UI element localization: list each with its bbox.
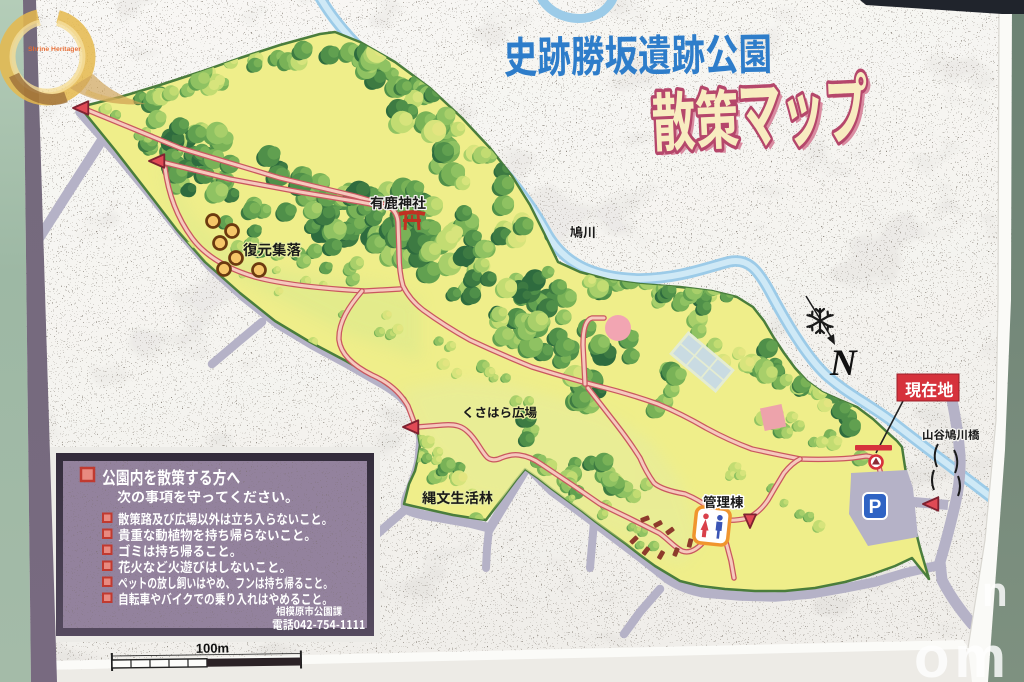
svg-text:Shrine Heritager: Shrine Heritager — [28, 46, 81, 53]
svg-text:om: om — [914, 625, 1011, 682]
svg-text:100m: 100m — [196, 640, 229, 655]
svg-text:n: n — [982, 568, 1008, 615]
svg-text:N: N — [829, 343, 858, 384]
svg-text:P: P — [869, 497, 882, 518]
